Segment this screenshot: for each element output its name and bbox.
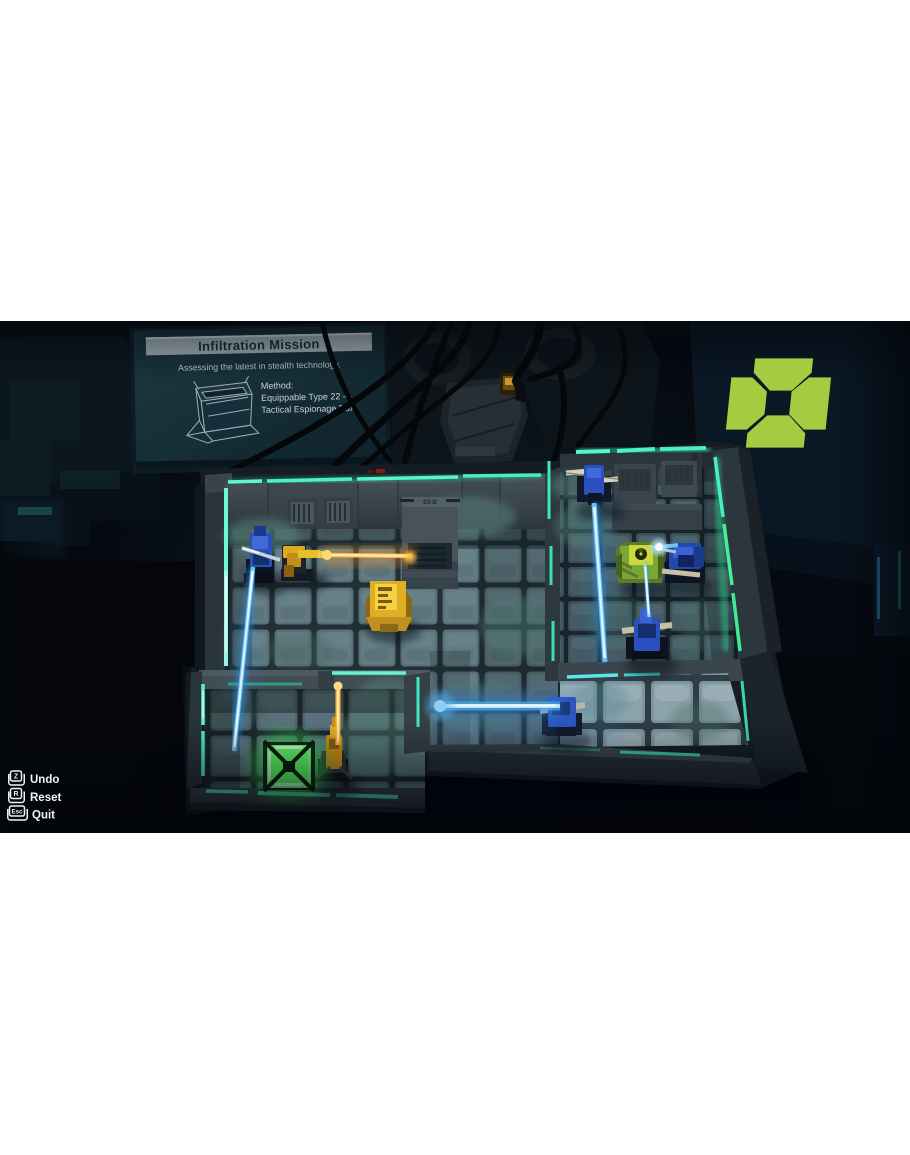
svg-text:93-B: 93-B [423, 499, 437, 506]
svg-text:Reset: Reset [30, 792, 61, 804]
svg-text:Infiltration Mission: Infiltration Mission [198, 336, 320, 354]
svg-text:Equippable Type 22 —: Equippable Type 22 — [261, 391, 352, 403]
svg-text:Method:: Method: [261, 380, 294, 391]
svg-text:Z: Z [14, 774, 19, 781]
svg-text:R: R [13, 791, 18, 798]
svg-text:Esc: Esc [11, 809, 23, 816]
svg-text:Undo: Undo [30, 774, 59, 786]
svg-text:Quit: Quit [32, 810, 55, 822]
